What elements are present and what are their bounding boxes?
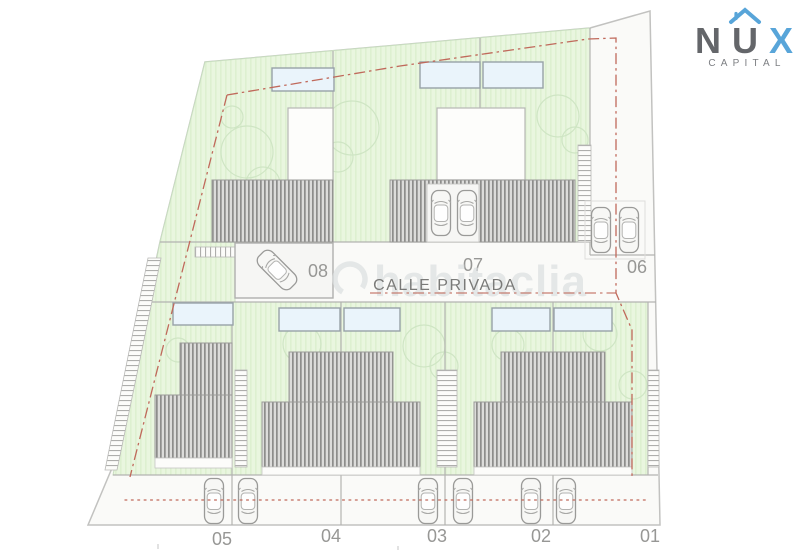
site-plan-canvas: 08 07 06 habitaclia CALLE PRIVADA bbox=[0, 0, 800, 550]
swimming-pool bbox=[492, 308, 550, 331]
swimming-pool bbox=[344, 308, 400, 331]
site-plan-page: 08 07 06 habitaclia CALLE PRIVADA bbox=[0, 0, 800, 550]
swimming-pool bbox=[272, 68, 334, 91]
car-icon bbox=[556, 479, 576, 524]
house-block bbox=[437, 108, 525, 180]
car-icon bbox=[453, 479, 473, 524]
swimming-pool bbox=[279, 308, 340, 331]
brand-letter-n: N bbox=[695, 20, 721, 61]
car-icon bbox=[204, 479, 224, 524]
plot-label-05: 05 bbox=[212, 529, 232, 549]
plot-label-08: 08 bbox=[308, 261, 328, 281]
plot-label-06: 06 bbox=[627, 257, 647, 277]
house-block bbox=[288, 108, 333, 182]
swimming-pool bbox=[483, 62, 543, 88]
plot-label-01: 01 bbox=[640, 526, 660, 546]
street-label: CALLE PRIVADA bbox=[373, 277, 517, 294]
stairs-icon bbox=[235, 370, 247, 467]
brand-name: N U X bbox=[695, 20, 793, 61]
porch bbox=[155, 458, 232, 468]
roof-hatching bbox=[289, 352, 393, 404]
roof-hatching bbox=[180, 343, 232, 395]
car-icon bbox=[457, 191, 477, 236]
plot-label-04: 04 bbox=[321, 526, 341, 546]
swimming-pool bbox=[420, 62, 480, 88]
brand-logo: N U X CAPITAL bbox=[695, 10, 793, 69]
bottom-plot-labels: 05 04 03 02 01 bbox=[212, 526, 660, 549]
car-icon bbox=[431, 191, 451, 236]
car-icon bbox=[591, 208, 611, 253]
roof-hatching bbox=[212, 180, 333, 242]
porch bbox=[474, 467, 632, 475]
car-icon bbox=[238, 479, 258, 524]
roof-hatching bbox=[390, 180, 575, 242]
roof-hatching bbox=[474, 402, 632, 467]
stairs-icon bbox=[195, 247, 235, 257]
porch bbox=[262, 467, 420, 475]
car-icon bbox=[619, 208, 639, 253]
car-icon bbox=[418, 479, 438, 524]
car-icon bbox=[521, 479, 541, 524]
swimming-pool bbox=[554, 308, 612, 331]
roof-hatching bbox=[155, 395, 232, 458]
plot-label-03: 03 bbox=[427, 526, 447, 546]
roof-hatching bbox=[262, 402, 420, 467]
brand-letter-u: U bbox=[732, 20, 758, 61]
plot-label-02: 02 bbox=[531, 526, 551, 546]
brand-subtitle: CAPITAL bbox=[708, 58, 785, 69]
stairs-icon bbox=[648, 370, 659, 467]
roof-hatching bbox=[501, 352, 605, 404]
brand-letter-x: X bbox=[769, 20, 793, 61]
swimming-pool bbox=[173, 303, 233, 325]
plan-tick-marks bbox=[158, 544, 398, 550]
stairs-icon bbox=[437, 370, 457, 467]
